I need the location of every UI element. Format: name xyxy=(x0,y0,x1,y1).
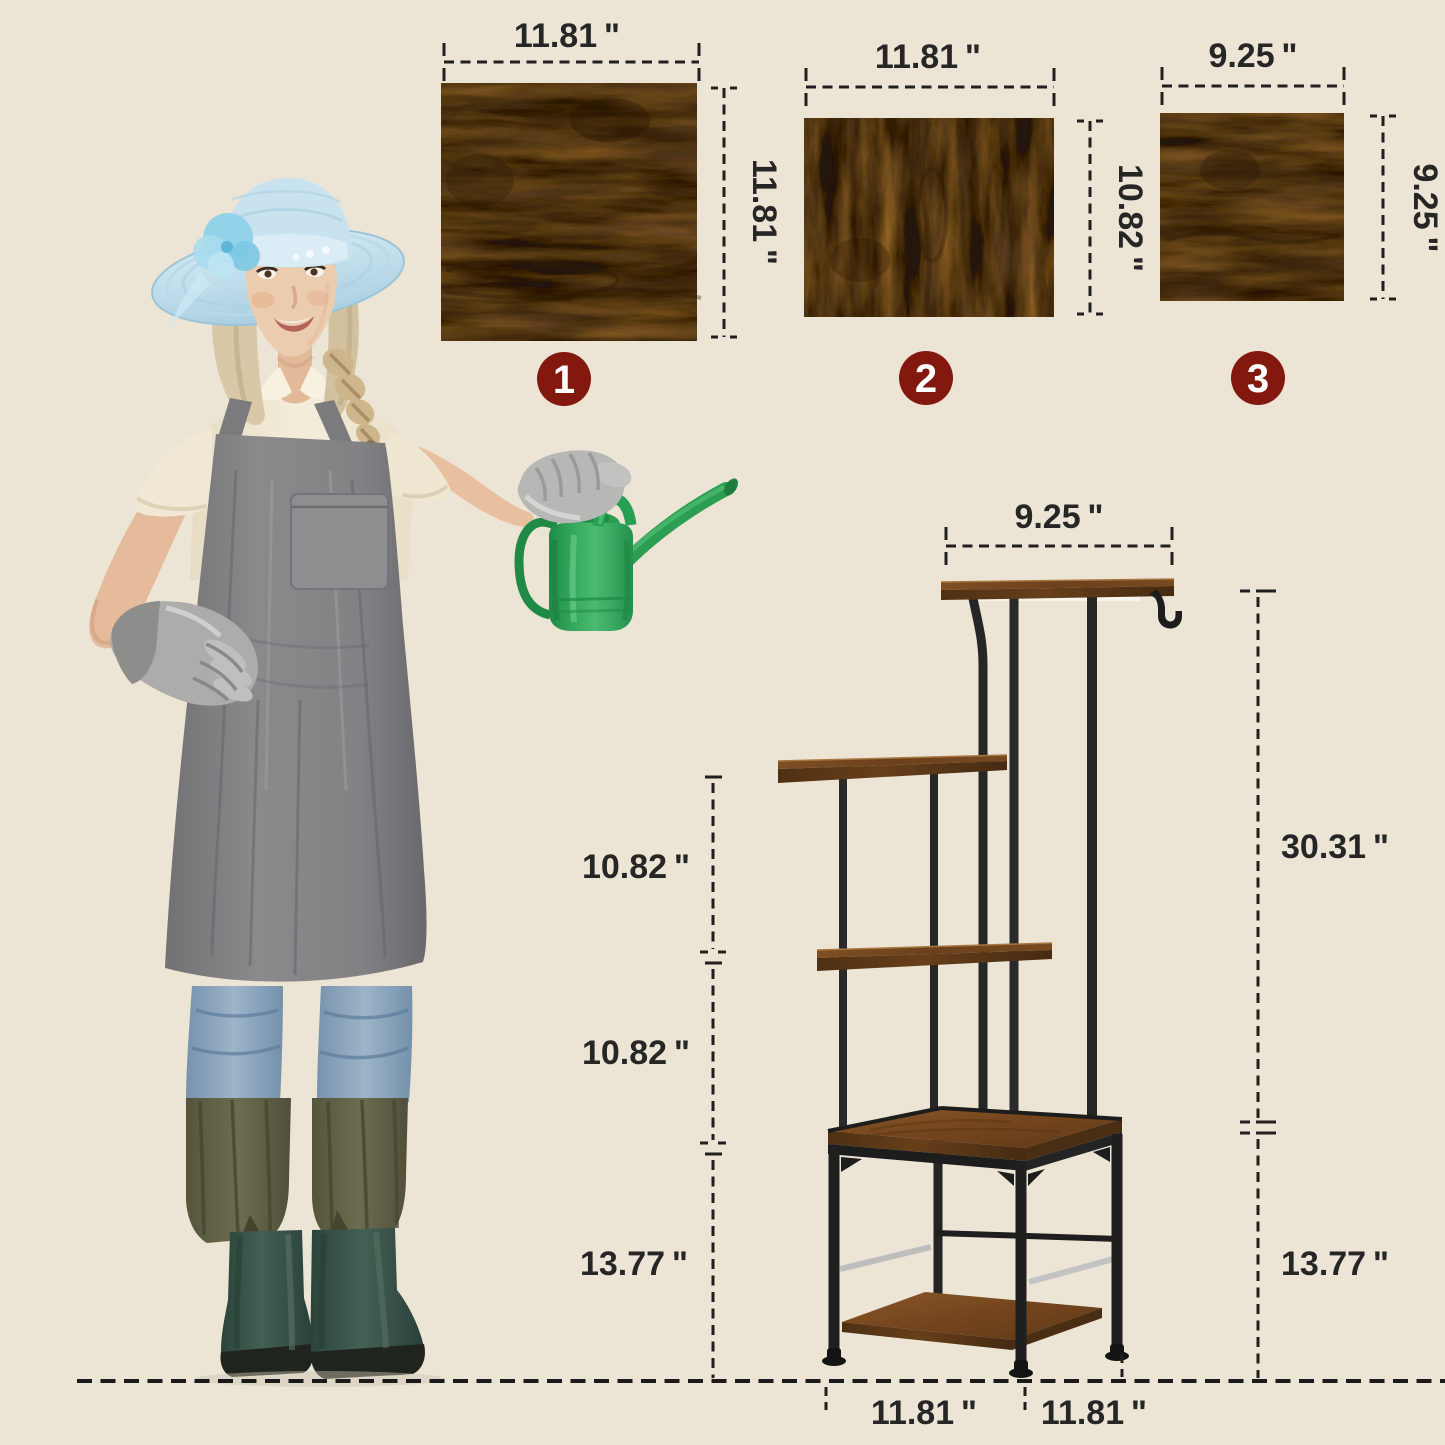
svg-text:11.81 ": 11.81 " xyxy=(745,159,783,265)
svg-text:9.25 ": 9.25 " xyxy=(1406,163,1444,252)
svg-text:9.25 ": 9.25 " xyxy=(1208,37,1297,75)
svg-text:11.81 ": 11.81 " xyxy=(1041,1394,1147,1432)
svg-text:10.82 ": 10.82 " xyxy=(582,1034,690,1072)
svg-text:10.82 ": 10.82 " xyxy=(1111,164,1149,272)
svg-text:2: 2 xyxy=(915,357,937,401)
svg-text:10.82 ": 10.82 " xyxy=(582,848,690,886)
svg-text:3: 3 xyxy=(1247,357,1269,401)
svg-text:11.81 ": 11.81 " xyxy=(871,1394,977,1432)
svg-text:30.31 ": 30.31 " xyxy=(1281,828,1389,866)
svg-text:11.81 ": 11.81 " xyxy=(875,38,981,76)
svg-text:13.77 ": 13.77 " xyxy=(1281,1245,1389,1283)
svg-text:13.77 ": 13.77 " xyxy=(580,1245,688,1283)
svg-text:1: 1 xyxy=(553,358,575,402)
svg-text:11.81 ": 11.81 " xyxy=(514,17,620,55)
svg-text:9.25 ": 9.25 " xyxy=(1014,498,1103,536)
